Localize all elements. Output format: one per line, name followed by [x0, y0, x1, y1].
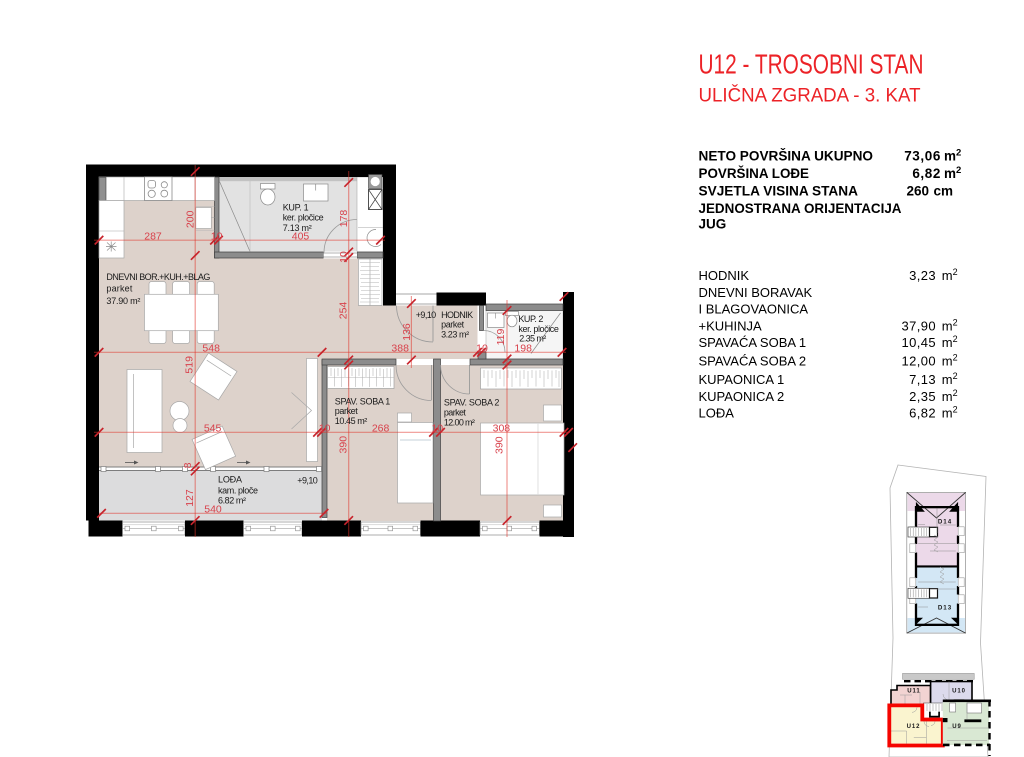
svg-text:287: 287: [144, 230, 162, 242]
svg-text:10.45 m²: 10.45 m²: [335, 416, 368, 426]
svg-text:SPAVAĆA SOBA 1: SPAVAĆA SOBA 1: [699, 335, 807, 350]
svg-text:LOĐA: LOĐA: [699, 406, 735, 421]
svg-text:10: 10: [211, 230, 223, 242]
svg-text:8: 8: [182, 462, 194, 468]
svg-text:cm: cm: [934, 184, 954, 199]
svg-text:ker. pločice: ker. pločice: [518, 324, 559, 334]
svg-text:119: 119: [495, 328, 507, 345]
svg-text:SPAV. SOBA 1: SPAV. SOBA 1: [335, 397, 391, 407]
svg-text:POVRŠINA LOĐE: POVRŠINA LOĐE: [699, 166, 810, 181]
svg-text:136: 136: [401, 323, 413, 341]
svg-text:KUP. 1: KUP. 1: [283, 203, 309, 213]
svg-text:390: 390: [494, 436, 506, 454]
svg-text:260: 260: [906, 184, 929, 199]
svg-text:LOĐA: LOĐA: [218, 475, 242, 485]
svg-text:7.13 m²: 7.13 m²: [283, 223, 312, 233]
svg-text:7,13: 7,13: [909, 372, 936, 387]
svg-text:198: 198: [514, 343, 532, 355]
svg-text:390: 390: [338, 436, 350, 454]
svg-text:12,00: 12,00: [901, 354, 936, 369]
svg-text:545: 545: [204, 423, 222, 435]
svg-text:548: 548: [202, 343, 220, 355]
svg-text:ker. pločice: ker. pločice: [283, 213, 324, 223]
svg-text:I BLAGOVAONICA: I BLAGOVAONICA: [699, 302, 809, 317]
svg-text:10: 10: [319, 423, 331, 435]
svg-text:NETO POVRŠINA UKUPNO: NETO POVRŠINA UKUPNO: [699, 149, 874, 164]
svg-text:D13: D13: [938, 605, 952, 612]
svg-text:12.00 m²: 12.00 m²: [444, 417, 475, 427]
svg-text:6,82: 6,82: [912, 166, 941, 181]
svg-text:parket: parket: [106, 284, 132, 294]
svg-text:DNEVNI BOR.+KUH.+BLAG: DNEVNI BOR.+KUH.+BLAG: [106, 272, 210, 282]
svg-text:parket: parket: [441, 320, 464, 330]
svg-text:D14: D14: [938, 519, 952, 526]
svg-text:268: 268: [372, 423, 390, 435]
svg-text:127: 127: [184, 489, 196, 507]
svg-text:3,23: 3,23: [909, 268, 936, 283]
svg-text:JUG: JUG: [699, 217, 727, 232]
svg-text:+KUHINJA: +KUHINJA: [699, 318, 763, 333]
svg-text:2,35: 2,35: [909, 389, 936, 404]
svg-text:parket: parket: [444, 408, 466, 418]
svg-text:SPAV. SOBA 2: SPAV. SOBA 2: [444, 398, 500, 408]
svg-text:178: 178: [338, 210, 350, 228]
svg-text:U11: U11: [907, 688, 920, 694]
svg-text:519: 519: [184, 356, 196, 374]
svg-text:U12 - TROSOBNI STAN: U12 - TROSOBNI STAN: [699, 49, 924, 80]
svg-text:10: 10: [476, 343, 488, 355]
svg-text:KUPAONICA 2: KUPAONICA 2: [699, 389, 785, 404]
svg-text:6,82: 6,82: [909, 406, 936, 421]
svg-text:kam. ploče: kam. ploče: [218, 486, 258, 496]
svg-text:SVJETLA VISINA STANA: SVJETLA VISINA STANA: [699, 184, 859, 199]
svg-text:3.23 m²: 3.23 m²: [441, 329, 469, 339]
svg-text:10,45: 10,45: [901, 335, 936, 350]
svg-text:+9,10: +9,10: [416, 310, 437, 320]
svg-text:10: 10: [338, 251, 350, 263]
svg-text:SPAVAĆA SOBA 2: SPAVAĆA SOBA 2: [699, 354, 807, 369]
svg-text:37,90: 37,90: [901, 318, 936, 333]
svg-text:37.90 m²: 37.90 m²: [106, 296, 140, 306]
svg-text:HODNIK: HODNIK: [699, 268, 750, 283]
svg-text:JEDNOSTRANA ORIJENTACIJA: JEDNOSTRANA ORIJENTACIJA: [699, 201, 902, 216]
svg-text:U12: U12: [907, 724, 921, 730]
svg-text:6.82 m²: 6.82 m²: [218, 496, 246, 506]
svg-text:200: 200: [185, 210, 197, 228]
svg-text:ULIČNA ZGRADA - 3. KAT: ULIČNA ZGRADA - 3. KAT: [699, 84, 921, 107]
svg-text:U9: U9: [952, 724, 961, 730]
svg-text:parket: parket: [335, 406, 358, 416]
svg-text:KUPAONICA 1: KUPAONICA 1: [699, 372, 785, 387]
svg-text:DNEVNI BORAVAK: DNEVNI BORAVAK: [699, 285, 813, 300]
svg-text:+9,10: +9,10: [297, 476, 318, 486]
svg-text:U10: U10: [952, 688, 966, 694]
svg-text:10: 10: [431, 423, 443, 435]
svg-text:308: 308: [493, 423, 511, 435]
svg-text:388: 388: [391, 343, 409, 355]
svg-text:KUP. 2: KUP. 2: [518, 314, 543, 324]
svg-text:254: 254: [338, 302, 350, 320]
svg-text:2.35 m²: 2.35 m²: [519, 334, 546, 344]
svg-text:HODNIK: HODNIK: [441, 310, 473, 320]
svg-text:73,06: 73,06: [904, 149, 941, 164]
